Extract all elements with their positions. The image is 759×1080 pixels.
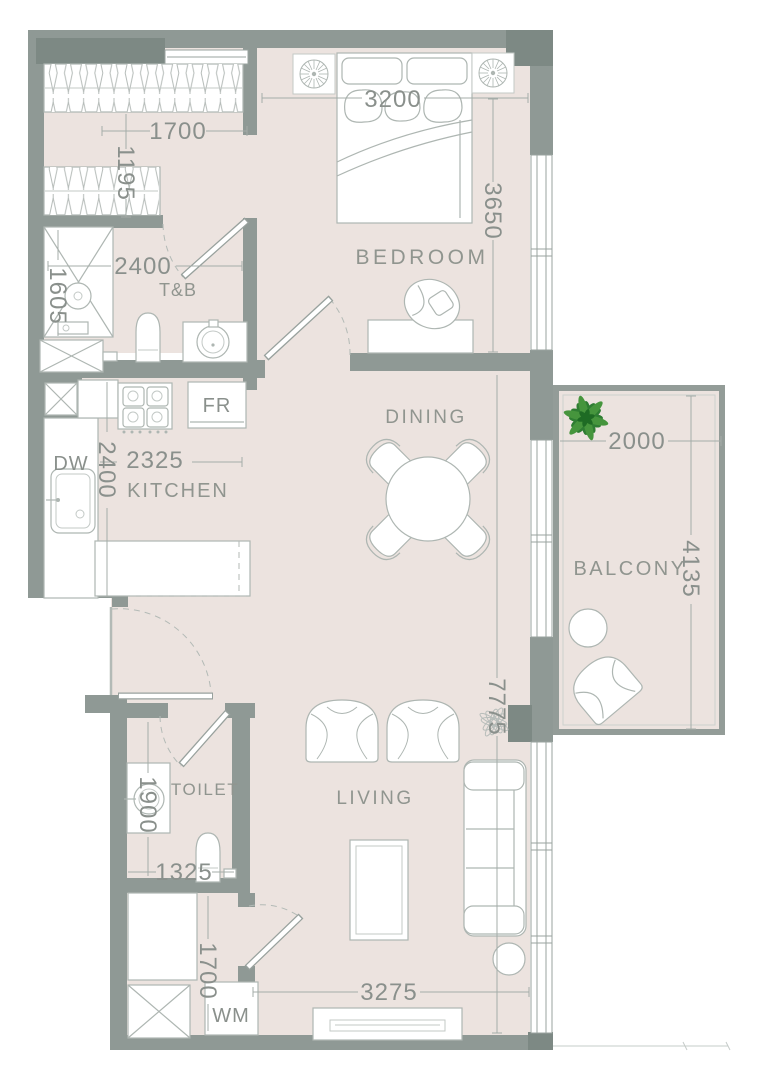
svg-text:1605: 1605 — [44, 267, 71, 324]
window-dining-balcony — [531, 440, 552, 637]
label-kitchen: KITCHEN — [127, 480, 229, 502]
svg-text:1195: 1195 — [112, 145, 139, 201]
floor-plan-canvas: 1700 1195 1605 2400 3200 3650 2325 2400 — [0, 0, 759, 1080]
label-fridge: FR — [203, 395, 232, 417]
label-bedroom: BEDROOM — [355, 246, 488, 269]
label-toilet: TOILET — [171, 780, 239, 799]
wall-utility-right-upper — [238, 893, 255, 907]
wall-bedroom-bottom — [350, 353, 530, 371]
dining-table — [386, 457, 470, 541]
window-living — [531, 742, 552, 1033]
wall-dining-right-lower — [530, 637, 553, 705]
svg-text:3650: 3650 — [479, 182, 506, 239]
wall-block-top-left — [36, 38, 165, 64]
label-tnb: T&B — [159, 280, 197, 300]
svg-text:2400: 2400 — [114, 253, 171, 280]
utility-counter — [128, 893, 197, 980]
svg-text:1900: 1900 — [134, 776, 161, 833]
wall-dining-right-upper — [530, 363, 553, 440]
tnb-toilet — [136, 313, 160, 362]
label-dining: DINING — [385, 407, 467, 428]
svg-text:2325: 2325 — [126, 447, 183, 474]
wall-left-lower-nib — [85, 695, 110, 713]
svg-text:7775: 7775 — [483, 678, 510, 735]
svg-text:1325: 1325 — [155, 859, 212, 886]
svg-text:3200: 3200 — [364, 86, 421, 113]
coffee-table — [350, 840, 408, 940]
label-washing-machine: WM — [212, 1005, 250, 1027]
window-bedroom — [531, 155, 552, 350]
wardrobe-side — [44, 167, 160, 215]
wall-left — [28, 30, 44, 598]
dim-exterior-faint-line — [553, 1042, 730, 1050]
svg-text:1700: 1700 — [194, 942, 221, 999]
tv-console — [313, 1008, 462, 1040]
balcony-side-table — [569, 609, 607, 647]
wall-left-lower — [110, 695, 127, 1050]
svg-text:3275: 3275 — [360, 979, 417, 1006]
sofa — [464, 760, 526, 936]
shaft-box-2 — [45, 383, 77, 415]
svg-text:2000: 2000 — [608, 428, 665, 455]
wall-bedroom-right-upper — [530, 66, 553, 155]
armchair-left — [306, 700, 378, 762]
stove — [118, 383, 172, 434]
label-living: LIVING — [336, 788, 413, 809]
side-table — [493, 943, 525, 975]
wall-entry-jamb — [112, 598, 128, 607]
wall-balcony-junction-dark — [508, 705, 532, 742]
kitchen-sink — [46, 469, 95, 533]
tnb-vanity — [183, 320, 247, 362]
wardrobe-top — [44, 64, 243, 112]
wall-toilet-top-left — [110, 703, 168, 718]
label-dishwasher: DW — [53, 453, 88, 475]
armchair-right — [387, 700, 459, 762]
kitchen-island — [95, 541, 250, 596]
floor-plan-page: 1700 1195 1605 2400 3200 3650 2325 2400 — [0, 0, 759, 1080]
utility-shaft — [128, 985, 190, 1038]
tnb-tap — [103, 352, 117, 361]
wall-block-bottom-right — [528, 1032, 553, 1050]
bed — [337, 53, 472, 223]
label-balcony: BALCONY — [573, 558, 686, 580]
svg-text:1700: 1700 — [149, 118, 206, 145]
ac-diffuser-left — [293, 54, 335, 94]
shaft-box-1 — [40, 340, 103, 372]
ac-diffuser-right — [472, 53, 514, 93]
svg-text:2400: 2400 — [93, 441, 120, 498]
wall-closet-bottom — [44, 215, 163, 228]
window-closet-shelf — [165, 50, 248, 64]
